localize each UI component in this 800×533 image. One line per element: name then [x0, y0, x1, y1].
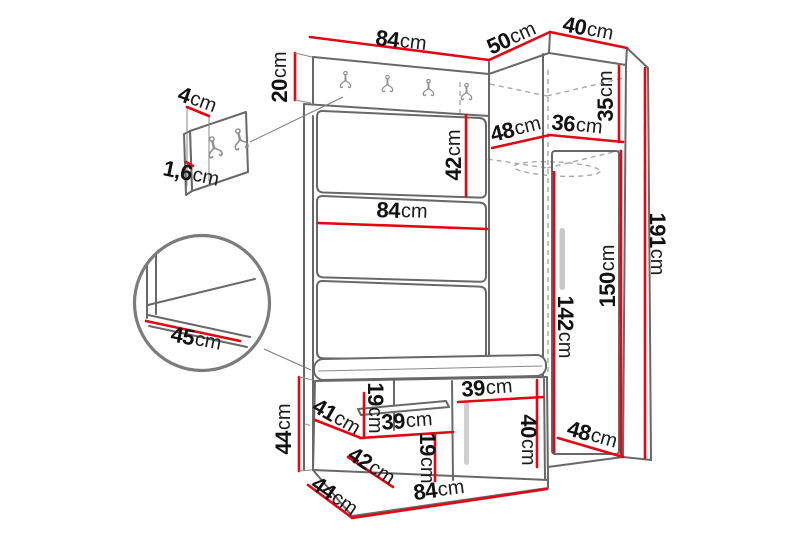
bench-divider	[452, 381, 453, 480]
bench-door-handle	[464, 402, 469, 465]
wardrobe-door-handle	[560, 228, 566, 290]
dim-interior-height: 142cm	[553, 296, 578, 359]
dim-lower-opening-height: 19cm	[415, 432, 440, 483]
dim-bench-shelf-width: 39cm	[380, 406, 433, 435]
dim-bench-door-width: 39cm	[460, 373, 513, 402]
dim-hanger-strip-height: 20cm	[267, 51, 292, 102]
upholstered-panel-3	[317, 281, 486, 361]
dim-top-compartment-height: 35cm	[593, 70, 618, 121]
dim-bench-door-height: 40cm	[516, 414, 541, 465]
dimension-diagram: 84cm 50cm 40cm 20cm 4cm 1,6cm 42cm 84cm …	[0, 0, 800, 533]
technical-drawing-page: 84cm 50cm 40cm 20cm 4cm 1,6cm 42cm 84cm …	[0, 0, 800, 533]
dim-total-height: 191cm	[645, 213, 670, 276]
dim-upper-panel-height: 42cm	[441, 129, 466, 180]
dim-panel-width: 84cm	[376, 197, 428, 224]
dim-bench-height: 44cm	[271, 403, 296, 454]
dim-door-height: 150cm	[595, 245, 620, 308]
